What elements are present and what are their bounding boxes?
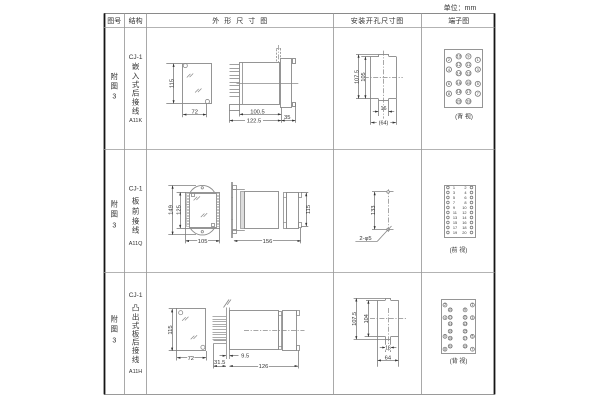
- svg-text:2-φ5: 2-φ5: [359, 236, 371, 242]
- svg-text:端子图: 端子图: [448, 16, 469, 25]
- svg-text:20: 20: [448, 344, 452, 348]
- svg-text:嵌: 嵌: [132, 62, 140, 71]
- svg-text:4: 4: [444, 316, 446, 320]
- svg-text:外形尺寸图: 外形尺寸图: [212, 16, 272, 25]
- svg-text:后: 后: [132, 337, 140, 347]
- svg-text:8: 8: [448, 92, 450, 96]
- svg-text:11: 11: [463, 316, 467, 320]
- svg-text:20: 20: [457, 100, 461, 104]
- svg-text:17: 17: [463, 336, 467, 340]
- svg-text:图: 图: [111, 82, 119, 91]
- svg-text:3: 3: [112, 94, 116, 101]
- svg-text:104: 104: [364, 314, 370, 323]
- svg-text:17: 17: [466, 90, 470, 94]
- svg-text:16: 16: [448, 329, 452, 333]
- svg-text:7: 7: [477, 92, 479, 96]
- svg-text:2: 2: [448, 58, 450, 62]
- svg-text:9.5: 9.5: [241, 354, 249, 360]
- svg-text:15: 15: [466, 81, 470, 85]
- svg-text:16: 16: [385, 345, 391, 351]
- svg-text:105: 105: [361, 72, 367, 81]
- svg-text:(背 视): (背 视): [450, 357, 468, 365]
- svg-text:115: 115: [168, 325, 174, 334]
- svg-text:(背 视): (背 视): [455, 113, 473, 121]
- svg-text:107.5: 107.5: [354, 70, 360, 84]
- svg-text:126: 126: [259, 364, 269, 370]
- svg-text:14: 14: [448, 322, 452, 326]
- svg-text:CJ-1: CJ-1: [129, 292, 143, 299]
- svg-text:19: 19: [453, 230, 457, 235]
- svg-text:图: 图: [111, 210, 119, 219]
- svg-text:19: 19: [466, 100, 470, 104]
- svg-text:8: 8: [444, 347, 446, 351]
- svg-text:单位：mm: 单位：mm: [444, 3, 477, 12]
- svg-text:133: 133: [371, 205, 377, 215]
- svg-text:3: 3: [112, 223, 116, 230]
- svg-text:前: 前: [132, 206, 140, 216]
- svg-text:31.5: 31.5: [214, 360, 225, 366]
- svg-text:115: 115: [306, 205, 312, 214]
- svg-text:接: 接: [132, 97, 140, 107]
- svg-text:接: 接: [132, 216, 140, 226]
- svg-text:10: 10: [457, 55, 461, 59]
- svg-text:18: 18: [457, 90, 461, 94]
- svg-text:图号: 图号: [107, 17, 121, 25]
- svg-text:CJ-1: CJ-1: [129, 185, 143, 192]
- svg-text:5: 5: [471, 335, 473, 339]
- svg-text:(64): (64): [379, 121, 389, 127]
- svg-text:64: 64: [385, 356, 392, 362]
- svg-text:105: 105: [198, 239, 208, 245]
- svg-text:3: 3: [477, 68, 479, 72]
- svg-text:3: 3: [471, 316, 473, 320]
- svg-text:72: 72: [188, 356, 194, 362]
- svg-text:(前 视): (前 视): [450, 246, 468, 254]
- svg-text:线: 线: [132, 354, 140, 364]
- svg-text:13: 13: [463, 322, 467, 326]
- svg-text:2: 2: [444, 303, 446, 307]
- svg-text:A11Q: A11Q: [129, 241, 143, 247]
- svg-text:4: 4: [448, 68, 450, 72]
- svg-text:CJ-1: CJ-1: [129, 54, 143, 61]
- svg-text:14: 14: [457, 72, 461, 76]
- svg-text:9: 9: [464, 308, 466, 312]
- svg-text:凸: 凸: [132, 304, 140, 313]
- svg-text:A11H: A11H: [129, 369, 142, 375]
- svg-text:72: 72: [191, 110, 197, 116]
- svg-text:9: 9: [467, 55, 469, 59]
- svg-text:107.5: 107.5: [352, 312, 358, 326]
- svg-text:图: 图: [111, 325, 119, 334]
- svg-text:115: 115: [169, 79, 175, 88]
- svg-text:10: 10: [448, 308, 452, 312]
- svg-text:式: 式: [132, 79, 140, 89]
- svg-text:1: 1: [477, 58, 479, 62]
- svg-text:149: 149: [168, 205, 174, 215]
- svg-text:6: 6: [444, 335, 446, 339]
- svg-text:12: 12: [448, 316, 452, 320]
- svg-text:附: 附: [111, 315, 119, 324]
- svg-text:122.5: 122.5: [247, 119, 262, 125]
- svg-text:100.5: 100.5: [250, 109, 265, 115]
- svg-text:附: 附: [111, 72, 119, 81]
- svg-text:13: 13: [466, 72, 470, 76]
- svg-text:7: 7: [471, 347, 473, 351]
- svg-text:3: 3: [112, 338, 116, 345]
- svg-text:15: 15: [463, 329, 467, 333]
- svg-text:安装开孔尺寸图: 安装开孔尺寸图: [351, 16, 404, 25]
- svg-text:125: 125: [176, 205, 182, 215]
- svg-text:A11K: A11K: [129, 118, 142, 124]
- svg-text:35: 35: [284, 115, 290, 121]
- svg-text:6: 6: [448, 82, 450, 86]
- svg-text:16: 16: [457, 81, 461, 85]
- svg-text:5: 5: [477, 82, 479, 86]
- svg-text:结构: 结构: [129, 16, 143, 25]
- svg-text:11: 11: [466, 63, 470, 67]
- svg-text:1: 1: [471, 303, 473, 307]
- svg-text:156: 156: [263, 239, 273, 245]
- svg-text:接: 接: [132, 345, 140, 355]
- svg-text:19: 19: [463, 344, 467, 348]
- svg-text:18: 18: [448, 336, 452, 340]
- svg-text:后: 后: [132, 88, 140, 98]
- svg-text:12: 12: [457, 63, 461, 67]
- svg-text:线: 线: [132, 105, 140, 115]
- svg-text:式: 式: [132, 320, 140, 330]
- svg-text:附: 附: [111, 200, 119, 209]
- svg-text:板: 板: [132, 196, 140, 206]
- svg-text:线: 线: [132, 225, 140, 235]
